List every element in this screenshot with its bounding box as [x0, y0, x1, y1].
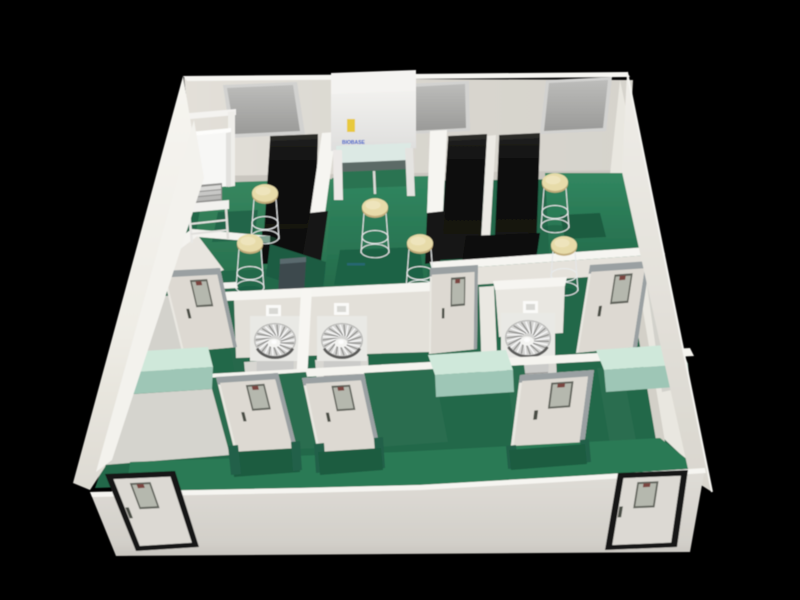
svg-text:BIOBASE: BIOBASE: [342, 140, 365, 146]
